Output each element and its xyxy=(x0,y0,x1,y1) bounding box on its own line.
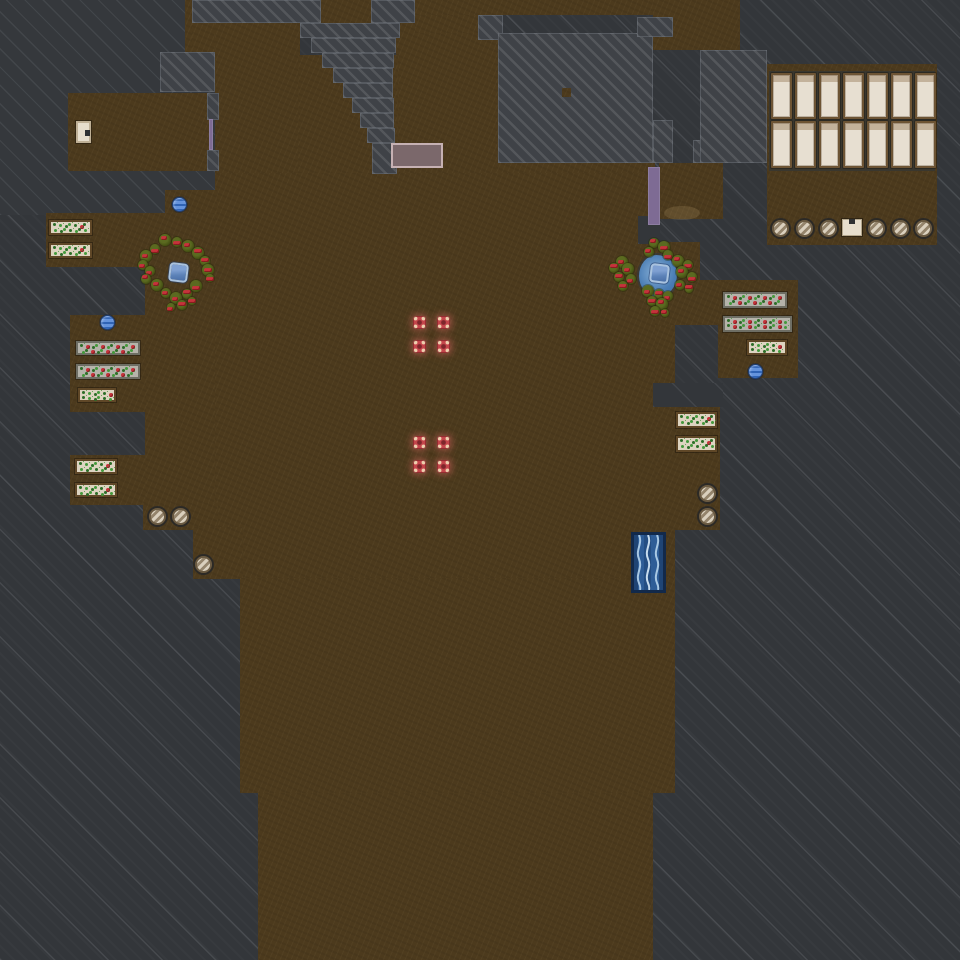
plant-sprout xyxy=(100,463,103,466)
plant-sprout xyxy=(83,223,86,226)
growing-planter[interactable] xyxy=(49,220,92,235)
game-map xyxy=(0,0,960,960)
plant-sprout xyxy=(78,251,81,254)
bed[interactable] xyxy=(843,73,864,119)
berry xyxy=(614,264,618,268)
berry-bush xyxy=(661,309,669,317)
plant-sprout xyxy=(772,344,775,347)
plant-sprout xyxy=(59,224,62,227)
plant-sprout xyxy=(82,391,85,394)
berry-bush xyxy=(618,281,628,291)
plant-sprout xyxy=(705,420,708,423)
berry xyxy=(163,236,167,240)
bed[interactable] xyxy=(771,121,792,168)
stool[interactable] xyxy=(149,508,166,525)
plant-sprout xyxy=(82,396,85,399)
berry xyxy=(688,264,692,268)
plant-sprout xyxy=(742,319,745,322)
berry xyxy=(768,301,772,305)
plant-sprout xyxy=(690,420,693,423)
plant-sprout xyxy=(681,445,684,448)
berry xyxy=(676,257,680,261)
berry xyxy=(660,300,664,304)
stool[interactable] xyxy=(699,508,716,525)
plant-sprout xyxy=(94,486,97,489)
plant-sprout xyxy=(772,319,775,322)
plant-sprout xyxy=(110,367,113,370)
purple-door[interactable] xyxy=(209,119,213,150)
growing-planter[interactable] xyxy=(676,412,717,428)
berry xyxy=(738,301,742,305)
plant-sprout xyxy=(747,300,750,303)
red-marker[interactable] xyxy=(437,436,450,449)
berry xyxy=(91,350,95,354)
plant-sprout xyxy=(68,223,71,226)
berry xyxy=(177,241,181,245)
berry xyxy=(778,325,782,329)
plant-sprout xyxy=(742,295,745,298)
plant-sprout xyxy=(104,491,107,494)
plant-sprout xyxy=(125,367,128,370)
bed[interactable] xyxy=(915,121,936,168)
plant-sprout xyxy=(772,295,775,298)
plant-sprout xyxy=(110,344,113,347)
plant-sprout xyxy=(63,228,66,231)
berry xyxy=(109,393,113,397)
plant-sprout xyxy=(751,348,754,351)
plant-sprout xyxy=(710,439,713,442)
berry xyxy=(205,258,209,262)
plant-sprout xyxy=(100,487,103,490)
plant-sprout xyxy=(100,349,103,352)
plant-sprout xyxy=(80,367,83,370)
stool[interactable] xyxy=(820,220,837,237)
plant-sprout xyxy=(79,462,82,465)
plant-sprout xyxy=(130,372,133,375)
plant-sprout xyxy=(772,349,775,352)
berry xyxy=(182,302,186,306)
berry xyxy=(196,286,200,290)
plant-sprout xyxy=(696,421,699,424)
berry xyxy=(91,373,95,377)
berry xyxy=(753,301,757,305)
plant-sprout xyxy=(681,421,684,424)
stool[interactable] xyxy=(915,220,932,237)
bed[interactable] xyxy=(891,121,912,168)
plant-sprout xyxy=(695,415,698,418)
plant-sprout xyxy=(727,319,730,322)
stool[interactable] xyxy=(868,220,885,237)
berry xyxy=(692,277,696,281)
plant-sprout xyxy=(104,467,107,470)
berry xyxy=(106,350,110,354)
plant-sprout xyxy=(110,468,113,471)
notch xyxy=(849,219,855,224)
berry-bush xyxy=(675,280,685,290)
plant-sprout xyxy=(79,486,82,489)
berry xyxy=(678,283,682,287)
plant-sprout xyxy=(784,321,787,324)
plant-sprout xyxy=(89,491,92,494)
berry xyxy=(629,279,633,283)
red-marker[interactable] xyxy=(413,340,426,353)
blue-orb-item[interactable] xyxy=(172,197,187,212)
plant-sprout xyxy=(125,344,128,347)
blue-orb-item[interactable] xyxy=(748,364,763,379)
plant-sprout xyxy=(97,391,100,394)
berry xyxy=(763,325,767,329)
plant-sprout xyxy=(95,367,98,370)
berry xyxy=(198,249,202,253)
berry xyxy=(623,284,627,288)
red-marker[interactable] xyxy=(437,460,450,473)
plant-sprout xyxy=(68,246,71,249)
berry xyxy=(186,243,190,247)
plant-sprout xyxy=(772,324,775,327)
plant-sprout xyxy=(766,348,769,351)
plant-sprout xyxy=(130,349,133,352)
plant-sprout xyxy=(109,462,112,465)
red-marker[interactable] xyxy=(437,316,450,329)
plant-sprout xyxy=(53,246,56,249)
plant-sprout xyxy=(85,349,88,352)
berry xyxy=(187,290,191,294)
plant-sprout xyxy=(696,445,699,448)
growing-planter[interactable] xyxy=(723,316,792,332)
plant-sprout xyxy=(115,349,118,352)
berry-bush xyxy=(626,274,636,284)
plant-sprout xyxy=(84,252,87,255)
plant-sprout xyxy=(757,319,760,322)
stool[interactable] xyxy=(772,220,789,237)
plant-sprout xyxy=(100,372,103,375)
berry xyxy=(619,274,623,278)
plant-sprout xyxy=(757,324,760,327)
plant-sprout xyxy=(97,396,100,399)
sand-patch xyxy=(664,206,700,220)
plant-sprout xyxy=(74,247,77,250)
berry-bush xyxy=(687,272,697,282)
berry xyxy=(733,320,737,324)
plant-sprout xyxy=(59,247,62,250)
plant-sprout xyxy=(69,252,72,255)
plant-sprout xyxy=(727,295,730,298)
purple-door[interactable] xyxy=(648,167,660,225)
berry xyxy=(164,291,168,295)
berry xyxy=(144,254,148,258)
plant-sprout xyxy=(83,246,86,249)
berry xyxy=(210,277,214,281)
growing-planter[interactable] xyxy=(676,436,717,452)
berry xyxy=(689,285,693,289)
blue-crate[interactable] xyxy=(168,262,189,283)
stool[interactable] xyxy=(172,508,189,525)
plant-sprout xyxy=(85,463,88,466)
plant-sprout xyxy=(701,416,704,419)
plant-sprout xyxy=(109,398,112,401)
plant-sprout xyxy=(110,492,113,495)
plant-sprout xyxy=(103,397,106,400)
bed[interactable] xyxy=(771,73,792,119)
berry xyxy=(121,350,125,354)
berry xyxy=(169,307,173,311)
berry-bush xyxy=(188,297,196,305)
plant-sprout xyxy=(732,300,735,303)
plant-sprout xyxy=(680,439,683,442)
plant-sprout xyxy=(109,486,112,489)
stool[interactable] xyxy=(892,220,909,237)
plant-sprout xyxy=(95,468,98,471)
growing-planter[interactable] xyxy=(723,292,787,308)
water-channel xyxy=(631,532,666,593)
objects-layer xyxy=(0,0,960,960)
plant-sprout xyxy=(69,229,72,232)
plant-sprout xyxy=(757,344,760,347)
plant-sprout xyxy=(778,350,781,353)
red-marker[interactable] xyxy=(413,436,426,449)
berry xyxy=(155,282,159,286)
bed[interactable] xyxy=(891,73,912,119)
plant-sprout xyxy=(94,462,97,465)
plant-sprout xyxy=(89,467,92,470)
berry xyxy=(174,297,178,301)
plant-sprout xyxy=(80,492,83,495)
plant-sprout xyxy=(80,344,83,347)
plant-sprout xyxy=(74,224,77,227)
plant-sprout xyxy=(751,343,754,346)
growing-planter[interactable] xyxy=(76,364,140,379)
plant-sprout xyxy=(85,487,88,490)
stool[interactable] xyxy=(699,485,716,502)
berry xyxy=(733,325,737,329)
berry xyxy=(778,345,782,349)
berry-bush xyxy=(167,303,175,311)
plant-sprout xyxy=(711,421,714,424)
berry xyxy=(141,264,145,268)
berry-bush xyxy=(177,300,187,310)
plant-sprout xyxy=(85,372,88,375)
berry xyxy=(748,325,752,329)
berry xyxy=(663,310,667,314)
growing-planter[interactable] xyxy=(49,243,92,258)
berry-bush xyxy=(206,274,214,282)
plant-sprout xyxy=(103,392,106,395)
notch xyxy=(85,130,90,136)
berry xyxy=(652,239,656,243)
plant-sprout xyxy=(727,324,730,327)
plant-sprout xyxy=(680,415,683,418)
plant-sprout xyxy=(78,228,81,231)
blue-orb-item[interactable] xyxy=(100,315,115,330)
berry xyxy=(155,249,159,253)
berry xyxy=(121,373,125,377)
plant-sprout xyxy=(54,229,57,232)
plant-sprout xyxy=(701,440,704,443)
plant-sprout xyxy=(95,344,98,347)
plant-sprout xyxy=(762,300,765,303)
berry-bush xyxy=(650,306,660,316)
plant-sprout xyxy=(63,251,66,254)
berry xyxy=(647,249,651,253)
plant-sprout xyxy=(88,392,91,395)
water-waves-icon xyxy=(634,535,663,590)
red-marker[interactable] xyxy=(413,460,426,473)
bed[interactable] xyxy=(819,121,840,168)
plant-sprout xyxy=(686,440,689,443)
berry xyxy=(144,275,148,279)
blue-crate[interactable] xyxy=(649,263,670,284)
plant-sprout xyxy=(686,416,689,419)
plant-sprout xyxy=(54,252,57,255)
berry xyxy=(763,320,767,324)
plant-sprout xyxy=(95,492,98,495)
growing-planter[interactable] xyxy=(75,483,117,497)
red-marker[interactable] xyxy=(413,316,426,329)
plant-sprout xyxy=(695,439,698,442)
berry xyxy=(655,310,659,314)
plant-sprout xyxy=(690,444,693,447)
berry xyxy=(208,268,212,272)
bed[interactable] xyxy=(795,73,816,119)
plant-sprout xyxy=(115,372,118,375)
berry-bush xyxy=(190,280,202,292)
berry xyxy=(106,373,110,377)
berry-bush xyxy=(685,285,693,293)
berry xyxy=(646,290,650,294)
plant-sprout xyxy=(757,295,760,298)
stool[interactable] xyxy=(796,220,813,237)
growing-planter[interactable] xyxy=(78,388,116,402)
berry-bush xyxy=(644,247,654,257)
bed[interactable] xyxy=(867,121,888,168)
bed[interactable] xyxy=(867,73,888,119)
berry-bush xyxy=(159,234,171,246)
growing-planter[interactable] xyxy=(747,340,787,355)
plant-sprout xyxy=(742,324,745,327)
bed[interactable] xyxy=(915,73,936,119)
growing-planter[interactable] xyxy=(75,459,117,474)
plant-sprout xyxy=(711,445,714,448)
plant-sprout xyxy=(705,444,708,447)
white-furniture[interactable] xyxy=(76,121,91,143)
bed[interactable] xyxy=(795,121,816,168)
plant-sprout xyxy=(80,468,83,471)
growing-planter[interactable] xyxy=(76,341,140,355)
plant-sprout xyxy=(88,397,91,400)
plant-sprout xyxy=(53,223,56,226)
red-marker[interactable] xyxy=(437,340,450,353)
plant-sprout xyxy=(757,349,760,352)
bed[interactable] xyxy=(819,73,840,119)
berry-bush xyxy=(172,237,182,247)
stool[interactable] xyxy=(195,556,212,573)
plant-sprout xyxy=(84,229,87,232)
berry xyxy=(192,299,196,303)
plant-sprout xyxy=(710,415,713,418)
berry xyxy=(680,269,684,273)
plant-sprout xyxy=(766,343,769,346)
berry xyxy=(748,320,752,324)
berry-bush xyxy=(141,274,151,284)
crate[interactable] xyxy=(842,219,862,236)
table[interactable] xyxy=(391,143,443,168)
berry xyxy=(778,320,782,324)
berry xyxy=(626,268,630,272)
plant-sprout xyxy=(784,326,787,329)
berry-bush xyxy=(150,244,160,254)
bed[interactable] xyxy=(843,121,864,168)
plant-sprout xyxy=(777,300,780,303)
